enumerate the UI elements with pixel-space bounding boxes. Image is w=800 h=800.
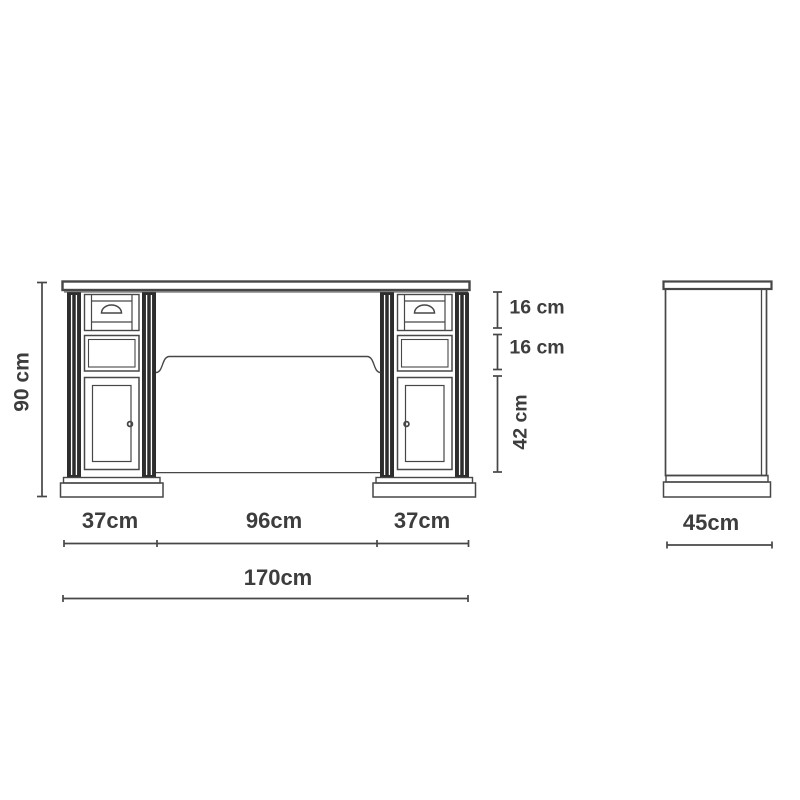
left-pedestal-width-label: 37cm <box>82 510 138 532</box>
desk-dimension-drawing <box>0 0 800 800</box>
right-pedestal-width-label: 37cm <box>394 510 450 532</box>
depth-label: 45cm <box>683 512 739 534</box>
top-drawer-height-label: 16 cm <box>509 298 564 318</box>
left-top-drawer <box>85 295 140 331</box>
right-side-dimension-lines <box>493 292 502 472</box>
side-plinth <box>664 476 771 498</box>
right-drawer-handle <box>415 305 435 313</box>
right-top-drawer <box>398 295 453 331</box>
right-pedestal <box>373 293 476 498</box>
right-pedestal-outer-column <box>455 293 469 478</box>
left-pedestal <box>61 293 164 498</box>
left-drawer-handle <box>102 305 122 313</box>
middle-drawer-height-label: 16 cm <box>509 338 564 358</box>
left-door-knob <box>128 422 133 427</box>
left-middle-drawer <box>85 336 140 372</box>
right-middle-drawer <box>398 336 453 372</box>
depth-dimension-line <box>667 542 772 549</box>
left-pedestal-inner-column <box>142 293 156 478</box>
left-door <box>85 378 140 470</box>
height-dimension-line <box>37 283 47 497</box>
height-label: 90 cm <box>12 352 33 412</box>
right-door <box>398 378 453 470</box>
right-plinth <box>373 478 476 498</box>
diagram-canvas: 90 cm 16 cm 16 cm 42 cm 37cm 96cm 37cm 1… <box>0 0 800 800</box>
left-pedestal-outer-column <box>67 293 81 478</box>
side-body <box>666 289 767 476</box>
side-desk-top <box>664 282 772 290</box>
door-height-label: 42 cm <box>511 394 531 449</box>
right-pedestal-inner-column <box>380 293 394 478</box>
modesty-panel-edge <box>156 357 381 373</box>
side-view <box>664 282 773 549</box>
desk-top <box>63 282 470 291</box>
knee-space-width-label: 96cm <box>246 510 302 532</box>
right-door-knob <box>404 422 409 427</box>
total-width-label: 170cm <box>244 567 313 589</box>
left-plinth <box>61 478 164 498</box>
front-view <box>61 282 476 498</box>
